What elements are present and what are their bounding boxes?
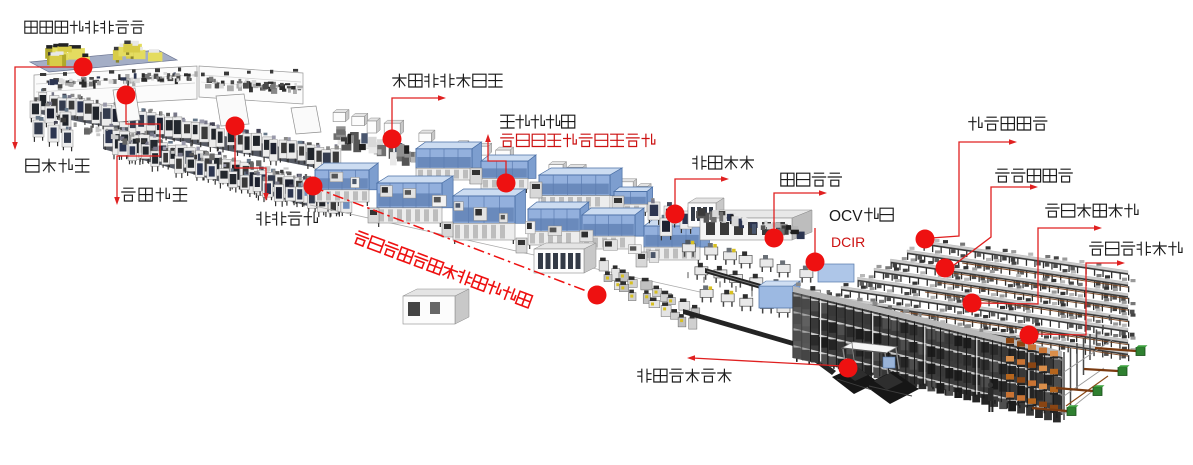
svg-text:DCIR: DCIR [831,234,865,250]
svg-text:OCV: OCV [829,208,863,225]
